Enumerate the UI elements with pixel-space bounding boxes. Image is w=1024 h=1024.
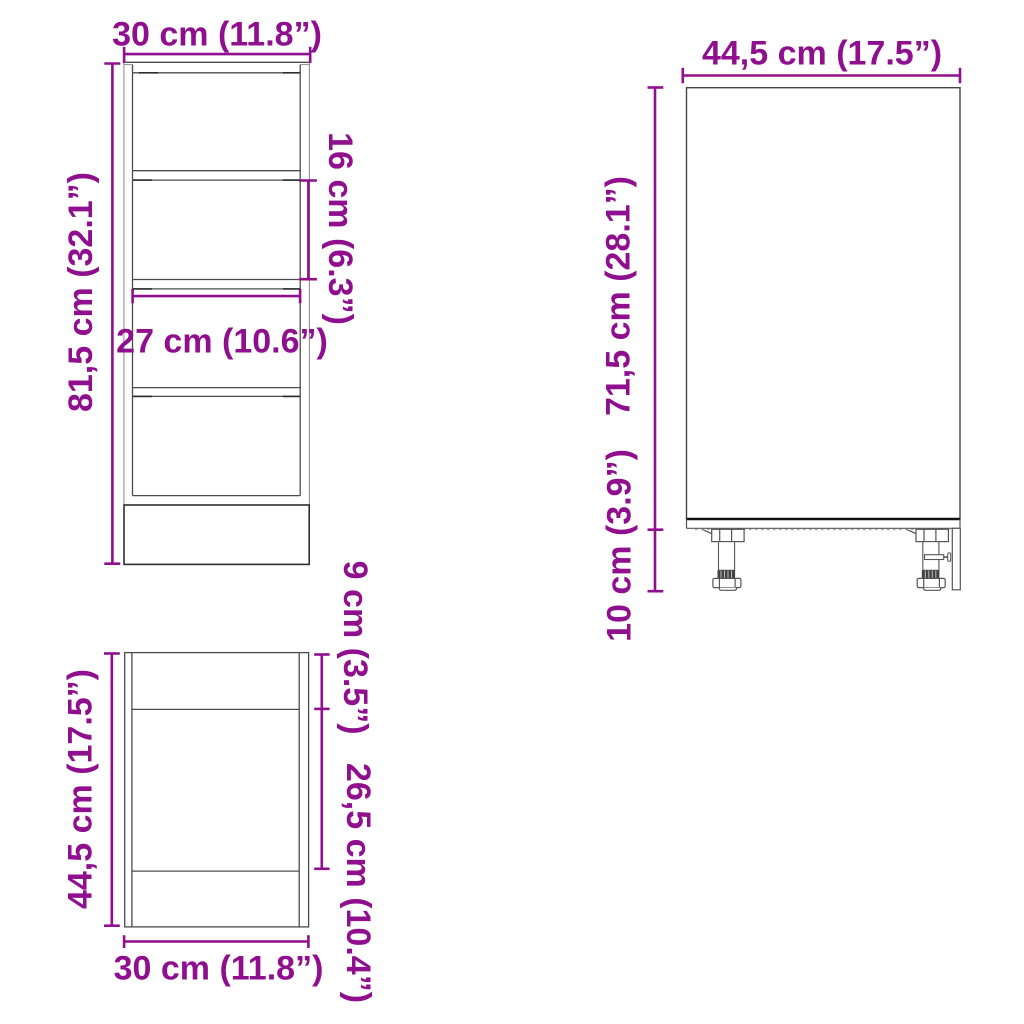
svg-text:71,5 cm (28.1”): 71,5 cm (28.1”) [600, 176, 638, 416]
svg-text:9 cm (3.5”): 9 cm (3.5”) [336, 561, 374, 735]
svg-text:44,5 cm (17.5”): 44,5 cm (17.5”) [702, 35, 942, 73]
svg-text:10 cm (3.9”): 10 cm (3.9”) [601, 449, 639, 642]
svg-text:27 cm (10.6”): 27 cm (10.6”) [116, 323, 328, 361]
svg-text:16 cm (6.3”): 16 cm (6.3”) [321, 132, 359, 325]
svg-text:30 cm (11.8”): 30 cm (11.8”) [112, 16, 322, 54]
svg-text:44,5 cm (17.5”): 44,5 cm (17.5”) [61, 669, 99, 909]
svg-text:26,5 cm (10.4”): 26,5 cm (10.4”) [339, 763, 377, 1003]
svg-text:30 cm (11.8”): 30 cm (11.8”) [114, 950, 324, 988]
svg-text:81,5 cm (32.1”): 81,5 cm (32.1”) [62, 172, 100, 412]
